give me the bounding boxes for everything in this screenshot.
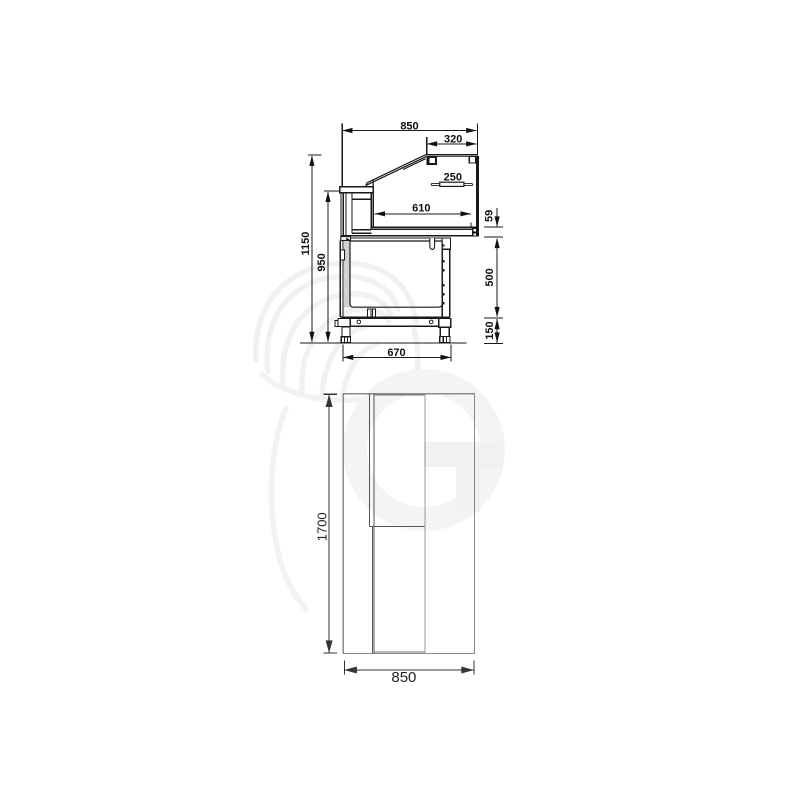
svg-text:250: 250 xyxy=(444,171,462,183)
svg-text:320: 320 xyxy=(444,134,462,146)
svg-text:1700: 1700 xyxy=(314,512,329,541)
svg-text:500: 500 xyxy=(484,268,496,286)
svg-text:850: 850 xyxy=(391,669,416,686)
svg-text:670: 670 xyxy=(387,347,405,359)
svg-text:850: 850 xyxy=(400,120,418,132)
svg-text:1150: 1150 xyxy=(300,232,312,256)
svg-text:610: 610 xyxy=(412,202,430,214)
svg-text:59: 59 xyxy=(483,210,495,222)
svg-text:950: 950 xyxy=(316,253,328,271)
svg-text:150: 150 xyxy=(484,321,496,339)
